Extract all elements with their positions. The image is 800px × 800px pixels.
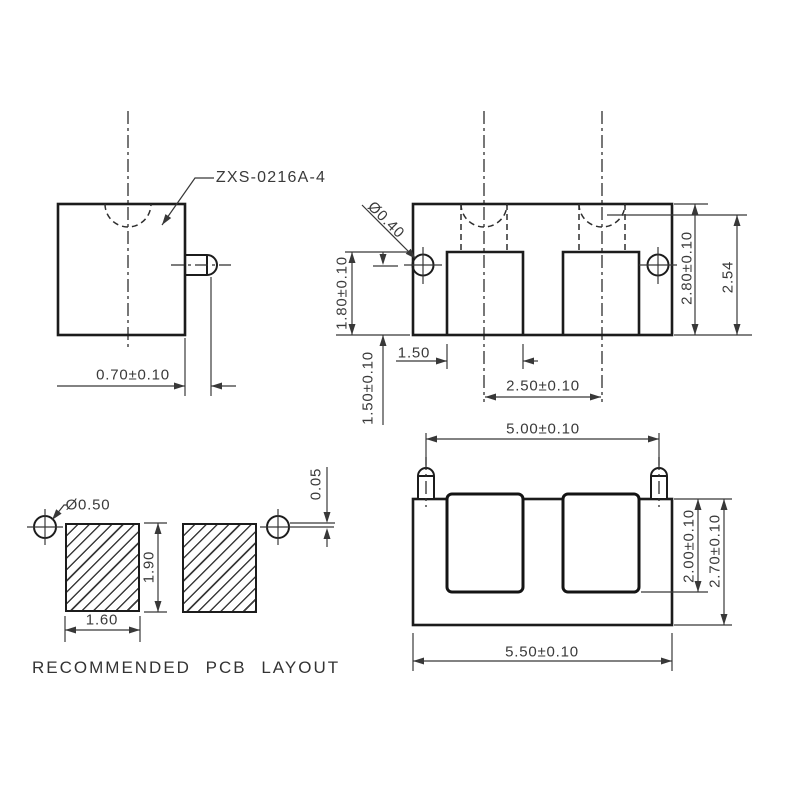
dim-body-height: 2.70±0.10 [708,514,723,588]
dim-ref-depth: 2.54 [721,261,736,293]
dim-pin-protrusion: 0.70±0.10 [96,368,170,383]
part-number-label: ZXS-0216A-4 [216,170,326,186]
technical-drawing-sheet: ZXS-0216A-4 0.70±0.10 Ø0.40 1.80±0.10 1.… [0,0,800,800]
pcb-layout-caption: RECOMMENDED PCB LAYOUT [32,659,340,676]
side-view [57,111,236,396]
dim-pad-pitch: 2.50±0.10 [506,379,580,394]
dim-pcb-pad-height: 1.90 [142,551,157,583]
dim-body-width: 5.50±0.10 [505,645,579,660]
dim-pin-length: 1.50±0.10 [361,351,376,425]
dim-pad-depth: 1.80±0.10 [335,256,350,330]
dim-edge-offset: 0.05 [309,468,324,500]
dim-hole-diameter: Ø0.50 [66,498,111,513]
pcb-pad-left [65,523,140,612]
dim-body-depth: 2.80±0.10 [680,231,695,305]
dim-pin-pitch: 5.00±0.10 [506,422,580,437]
dim-pad-height-front: 2.00±0.10 [682,509,697,583]
pcb-pad-right [182,523,257,613]
dim-pcb-pad-width: 1.60 [86,613,118,628]
dim-pad-width-top: 1.50 [398,346,430,361]
drawing-linework [0,0,800,800]
